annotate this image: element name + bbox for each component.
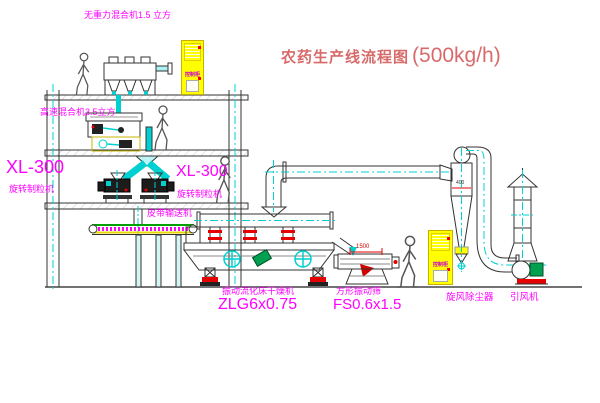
control-cabinet-lower: 控制柜 bbox=[428, 230, 453, 285]
label-granulator-right-name: 旋转制粒机 bbox=[177, 190, 222, 199]
label-dryer-model: ZLG6x0.75 bbox=[218, 297, 297, 313]
diagram-title: 农药生产线流程图 (500kg/h) bbox=[281, 44, 501, 68]
cabinet-panel bbox=[433, 270, 448, 282]
vibration-motor bbox=[253, 250, 272, 267]
square-vibrating-sieve bbox=[334, 248, 399, 284]
label-gravity-free-mixer: 无重力混合机1.5 立方 bbox=[84, 11, 171, 20]
y-chute bbox=[124, 156, 168, 179]
label-granulator-left-model: XL-300 bbox=[6, 158, 64, 176]
high-speed-mixer bbox=[86, 113, 152, 151]
label-granulator-right-model: XL-300 bbox=[176, 164, 228, 180]
exhaust-duct bbox=[262, 160, 452, 217]
cabinet-vent-stripes bbox=[431, 233, 450, 251]
cabinet-label: 控制柜 bbox=[431, 262, 451, 267]
control-cabinet-upper: 控制柜 bbox=[181, 40, 204, 95]
label-sieve-name: 方形振动筛 bbox=[336, 287, 381, 296]
label-dryer-name: 振动流化床干燥机 bbox=[222, 287, 294, 296]
label-belt-conveyor: 皮带输送机 bbox=[147, 209, 192, 218]
flow-diagram-canvas: 控制柜 控制柜 农药生产线流程图 (500kg/h) 无重力混合机1.5 立方 … bbox=[0, 0, 600, 403]
indicator-light-icon bbox=[447, 237, 450, 240]
dim-cyclone-width: 400 bbox=[456, 181, 464, 186]
indicator-light-icon bbox=[198, 46, 201, 49]
title-text: 农药生产线流程图 bbox=[281, 46, 409, 67]
gravity-free-mixer bbox=[104, 57, 172, 113]
cyclone-dust-collector bbox=[451, 147, 472, 272]
label-high-speed-mixer: 高速混合机3.5立方 bbox=[40, 108, 116, 117]
cabinet-panel bbox=[186, 80, 199, 92]
rotary-granulator-right bbox=[140, 170, 174, 203]
induced-draft-fan bbox=[512, 261, 548, 284]
label-granulator-left-name: 旋转制粒机 bbox=[9, 185, 54, 194]
label-sieve-model: FS0.6x1.5 bbox=[333, 297, 401, 312]
label-cyclone: 旋风除尘器 bbox=[446, 293, 494, 303]
fluid-bed-dryer bbox=[184, 212, 357, 286]
label-fan: 引风机 bbox=[510, 293, 539, 303]
title-capacity: (500kg/h) bbox=[412, 44, 501, 68]
belt-conveyor bbox=[89, 225, 197, 287]
dim-sieve-length: 1500 bbox=[356, 244, 369, 250]
